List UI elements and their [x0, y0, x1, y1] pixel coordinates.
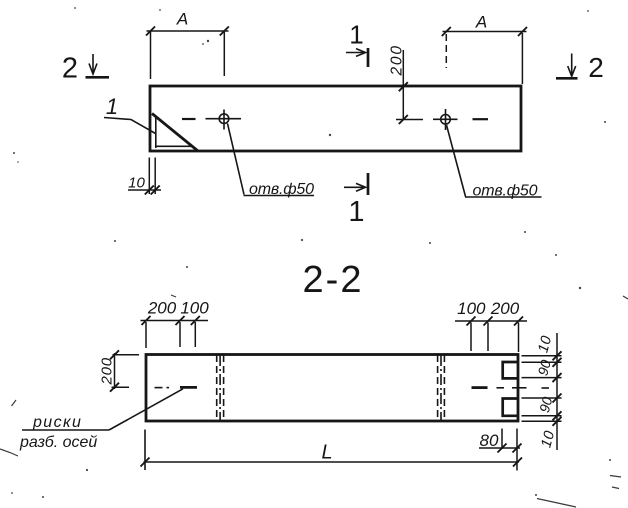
svg-text:разб. осей: разб. осей	[19, 434, 97, 451]
svg-text:10: 10	[128, 175, 145, 192]
svg-text:1: 1	[348, 196, 364, 228]
svg-text:L: L	[321, 442, 332, 464]
svg-text:200: 200	[389, 44, 406, 76]
svg-text:200: 200	[490, 299, 520, 318]
svg-text:100: 100	[457, 299, 486, 318]
svg-text:отв.ф50: отв.ф50	[249, 181, 314, 198]
svg-text:A: A	[176, 10, 188, 29]
svg-text:200: 200	[147, 299, 177, 318]
svg-text:A: A	[475, 13, 487, 32]
svg-text:10: 10	[535, 334, 555, 355]
svg-text:80: 80	[480, 431, 499, 450]
svg-text:2-2: 2-2	[303, 259, 364, 301]
svg-text:1: 1	[106, 94, 118, 119]
svg-text:2: 2	[62, 53, 78, 85]
svg-text:10: 10	[538, 429, 558, 450]
svg-text:200: 200	[99, 357, 116, 385]
svg-text:1: 1	[349, 20, 363, 50]
svg-text:отв.ф50: отв.ф50	[473, 182, 538, 199]
svg-text:риски: риски	[32, 414, 82, 431]
svg-text:100: 100	[180, 299, 209, 318]
svg-text:2: 2	[588, 52, 604, 83]
svg-text:90: 90	[534, 358, 554, 377]
